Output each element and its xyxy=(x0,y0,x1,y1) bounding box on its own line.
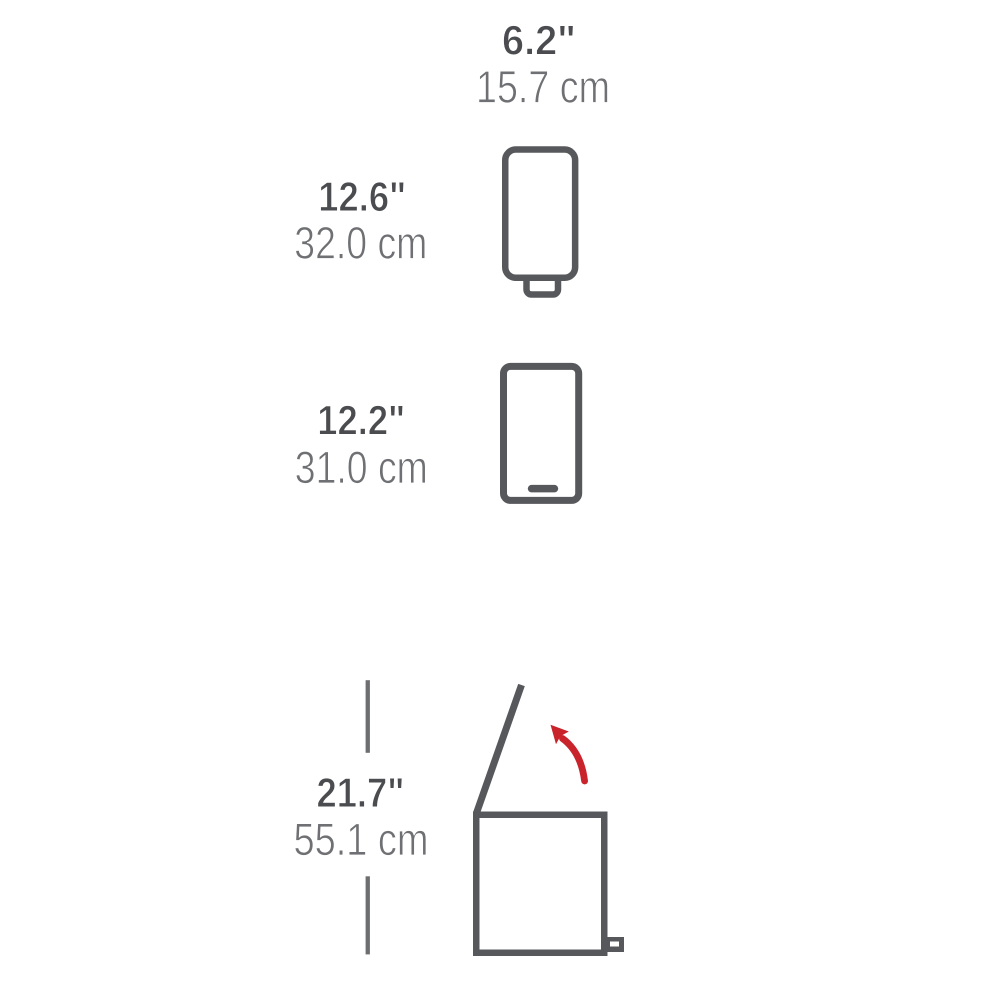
svg-text:15.7 cm: 15.7 cm xyxy=(476,61,610,112)
svg-text:21.7": 21.7" xyxy=(317,769,405,816)
svg-text:55.1 cm: 55.1 cm xyxy=(294,814,429,865)
svg-text:12.6": 12.6" xyxy=(318,173,406,220)
svg-text:12.2": 12.2" xyxy=(317,397,405,444)
svg-text:6.2": 6.2" xyxy=(502,17,576,64)
svg-text:32.0 cm: 32.0 cm xyxy=(294,218,427,269)
svg-text:31.0 cm: 31.0 cm xyxy=(295,442,428,493)
